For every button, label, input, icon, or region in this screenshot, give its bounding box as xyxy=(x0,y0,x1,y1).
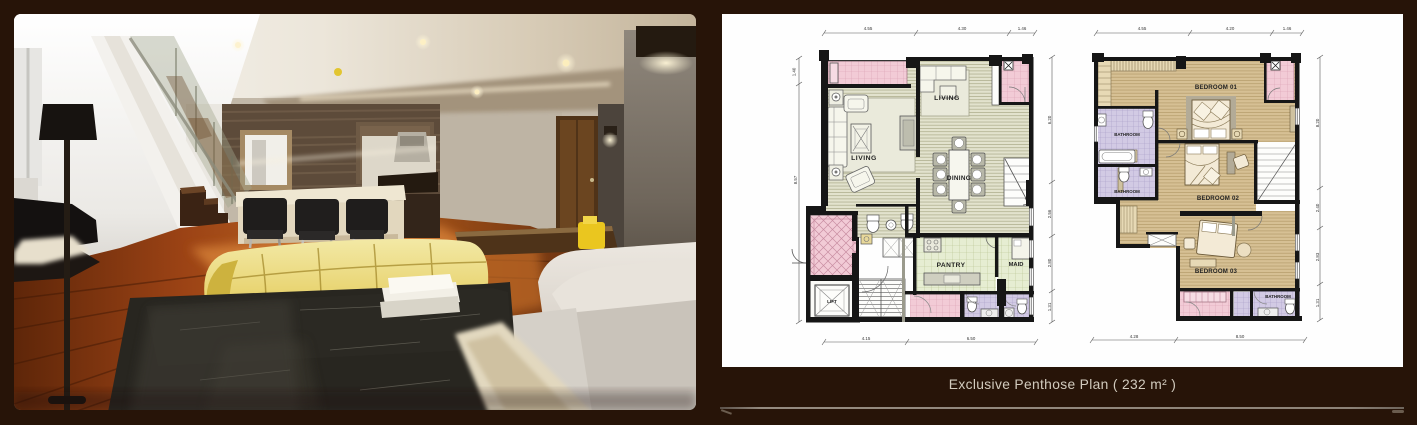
svg-text:BATHROOM: BATHROOM xyxy=(1114,132,1140,137)
svg-text:8.20: 8.20 xyxy=(1315,118,1320,127)
svg-text:LIVING: LIVING xyxy=(851,155,877,162)
svg-text:1.46: 1.46 xyxy=(1283,26,1292,31)
svg-text:BEDROOM 02: BEDROOM 02 xyxy=(1197,195,1240,202)
svg-text:4.30: 4.30 xyxy=(958,26,967,31)
svg-text:4.55: 4.55 xyxy=(1138,26,1147,31)
svg-text:2.56: 2.56 xyxy=(1047,209,1052,218)
svg-text:BATHROOM: BATHROOM xyxy=(1114,189,1140,194)
svg-text:2.80: 2.80 xyxy=(1047,258,1052,267)
svg-text:MAID: MAID xyxy=(1009,262,1024,268)
svg-text:4.55: 4.55 xyxy=(864,26,873,31)
svg-text:BEDROOM 01: BEDROOM 01 xyxy=(1195,84,1238,91)
svg-text:BATHROOM: BATHROOM xyxy=(1265,294,1291,299)
svg-text:8.57: 8.57 xyxy=(793,175,798,184)
svg-text:LIVING: LIVING xyxy=(934,95,960,102)
svg-text:1.31: 1.31 xyxy=(1315,298,1320,307)
svg-text:2.83: 2.83 xyxy=(1315,252,1320,261)
svg-text:1.46: 1.46 xyxy=(1018,26,1027,31)
svg-text:1.40: 1.40 xyxy=(792,67,797,76)
svg-text:PANTRY: PANTRY xyxy=(937,262,966,269)
svg-text:LIFT: LIFT xyxy=(827,299,837,304)
svg-text:BEDROOM 03: BEDROOM 03 xyxy=(1195,268,1238,275)
svg-text:1.31: 1.31 xyxy=(1047,302,1052,311)
svg-text:2.40: 2.40 xyxy=(1315,203,1320,212)
svg-text:8.50: 8.50 xyxy=(1236,334,1245,339)
svg-text:6.20: 6.20 xyxy=(1047,115,1052,124)
svg-text:6.50: 6.50 xyxy=(967,336,976,341)
svg-text:4.15: 4.15 xyxy=(862,336,871,341)
svg-text:4.28: 4.28 xyxy=(1130,334,1139,339)
svg-text:DINING: DINING xyxy=(947,175,971,182)
svg-text:4.20: 4.20 xyxy=(1226,26,1235,31)
